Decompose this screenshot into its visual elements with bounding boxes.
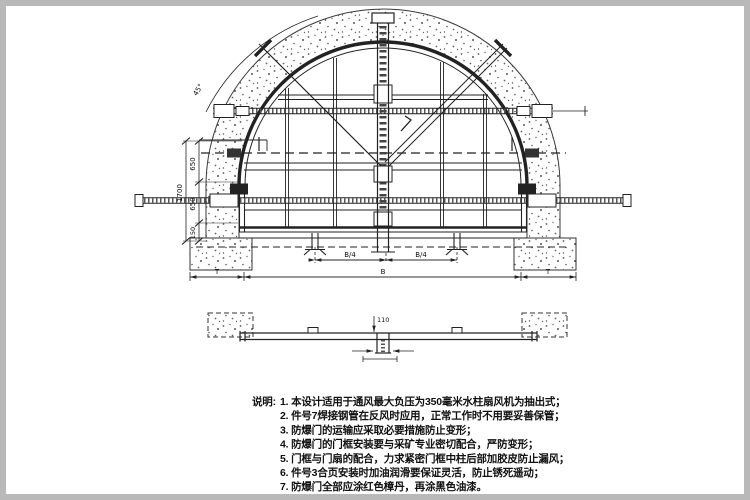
footing-block-right xyxy=(514,238,576,270)
dim-base-150: 150 xyxy=(189,227,197,239)
tie-bar-connector-right xyxy=(532,105,552,118)
center-mast xyxy=(371,13,395,252)
dim-arc-angle: 45° xyxy=(192,83,205,98)
notes-label: 说明: xyxy=(252,395,276,408)
note-line-7: 7. 防爆门全部应涂红色樟丹，再涂黑色油漆。 xyxy=(280,480,487,493)
turnbuckle-right xyxy=(528,194,556,207)
mast-top-cap xyxy=(372,13,394,23)
note-line-2: 2. 件号7焊接钢管在反风时应用，正常工作时不用要妥善保管； xyxy=(280,409,565,422)
rod-bracket-left xyxy=(227,149,241,158)
dim-upper-650: 650 xyxy=(189,157,197,170)
door-bottom-member xyxy=(239,228,527,239)
plan-center-post xyxy=(375,333,391,353)
dim-lower-650: 650 xyxy=(189,197,197,210)
dim-quarter-left: B/4 xyxy=(344,251,356,259)
dim-wall-right: T xyxy=(545,268,551,276)
note-line-4: 4. 防爆门的门框安装要与采矿专业密切配合，严防变形； xyxy=(280,438,538,451)
page-frame: 1700 650 650 150 45° B/4 B/4 xyxy=(0,0,750,500)
sill-tab-left xyxy=(304,233,326,255)
upper-tie-bar xyxy=(213,105,588,118)
footing-block-left xyxy=(190,238,252,270)
plan-view: 110 xyxy=(208,313,567,362)
dim-total-height: 1700 xyxy=(176,184,184,202)
note-line-1: 1. 本设计适用于通风最大负压为350毫米水柱扇风机为抽出式； xyxy=(280,395,566,408)
rod-bracket-right xyxy=(525,149,539,158)
reference-ticks xyxy=(259,137,512,151)
note-line-5: 5. 门框与门扇的配合，力求紧密门框中柱后部加胶皮防止漏风； xyxy=(280,452,569,465)
technical-drawing: 1700 650 650 150 45° B/4 B/4 xyxy=(6,6,744,494)
dim-plan-center-width: 110 xyxy=(377,316,389,324)
note-line-3: 3. 防爆门的运输应采取必要措施防止变形； xyxy=(280,423,476,436)
rod-end-right xyxy=(623,195,631,207)
dim-quarter-right: B/4 xyxy=(415,251,427,259)
sill-tab-right xyxy=(446,233,468,255)
front-elevation-view xyxy=(135,9,631,270)
hinge-right xyxy=(518,184,536,195)
dim-wall-left: T xyxy=(214,268,220,276)
turnbuckle-left xyxy=(210,194,238,207)
plan-tab-right xyxy=(452,328,462,334)
leader-mark xyxy=(401,116,411,131)
rod-end-left xyxy=(135,195,143,207)
note-line-6: 6. 件号3合页安装时加油润滑要保证灵活，防止锈死遥动； xyxy=(280,466,544,479)
plan-tab-left xyxy=(308,328,318,334)
tie-bar-connector-left xyxy=(214,105,234,118)
hinge-left xyxy=(230,184,248,195)
dim-span-center: B xyxy=(381,268,386,276)
notes-section: 说明: 1. 本设计适用于通风最大负压为350毫米水柱扇风机为抽出式； 2. 件… xyxy=(252,395,569,493)
